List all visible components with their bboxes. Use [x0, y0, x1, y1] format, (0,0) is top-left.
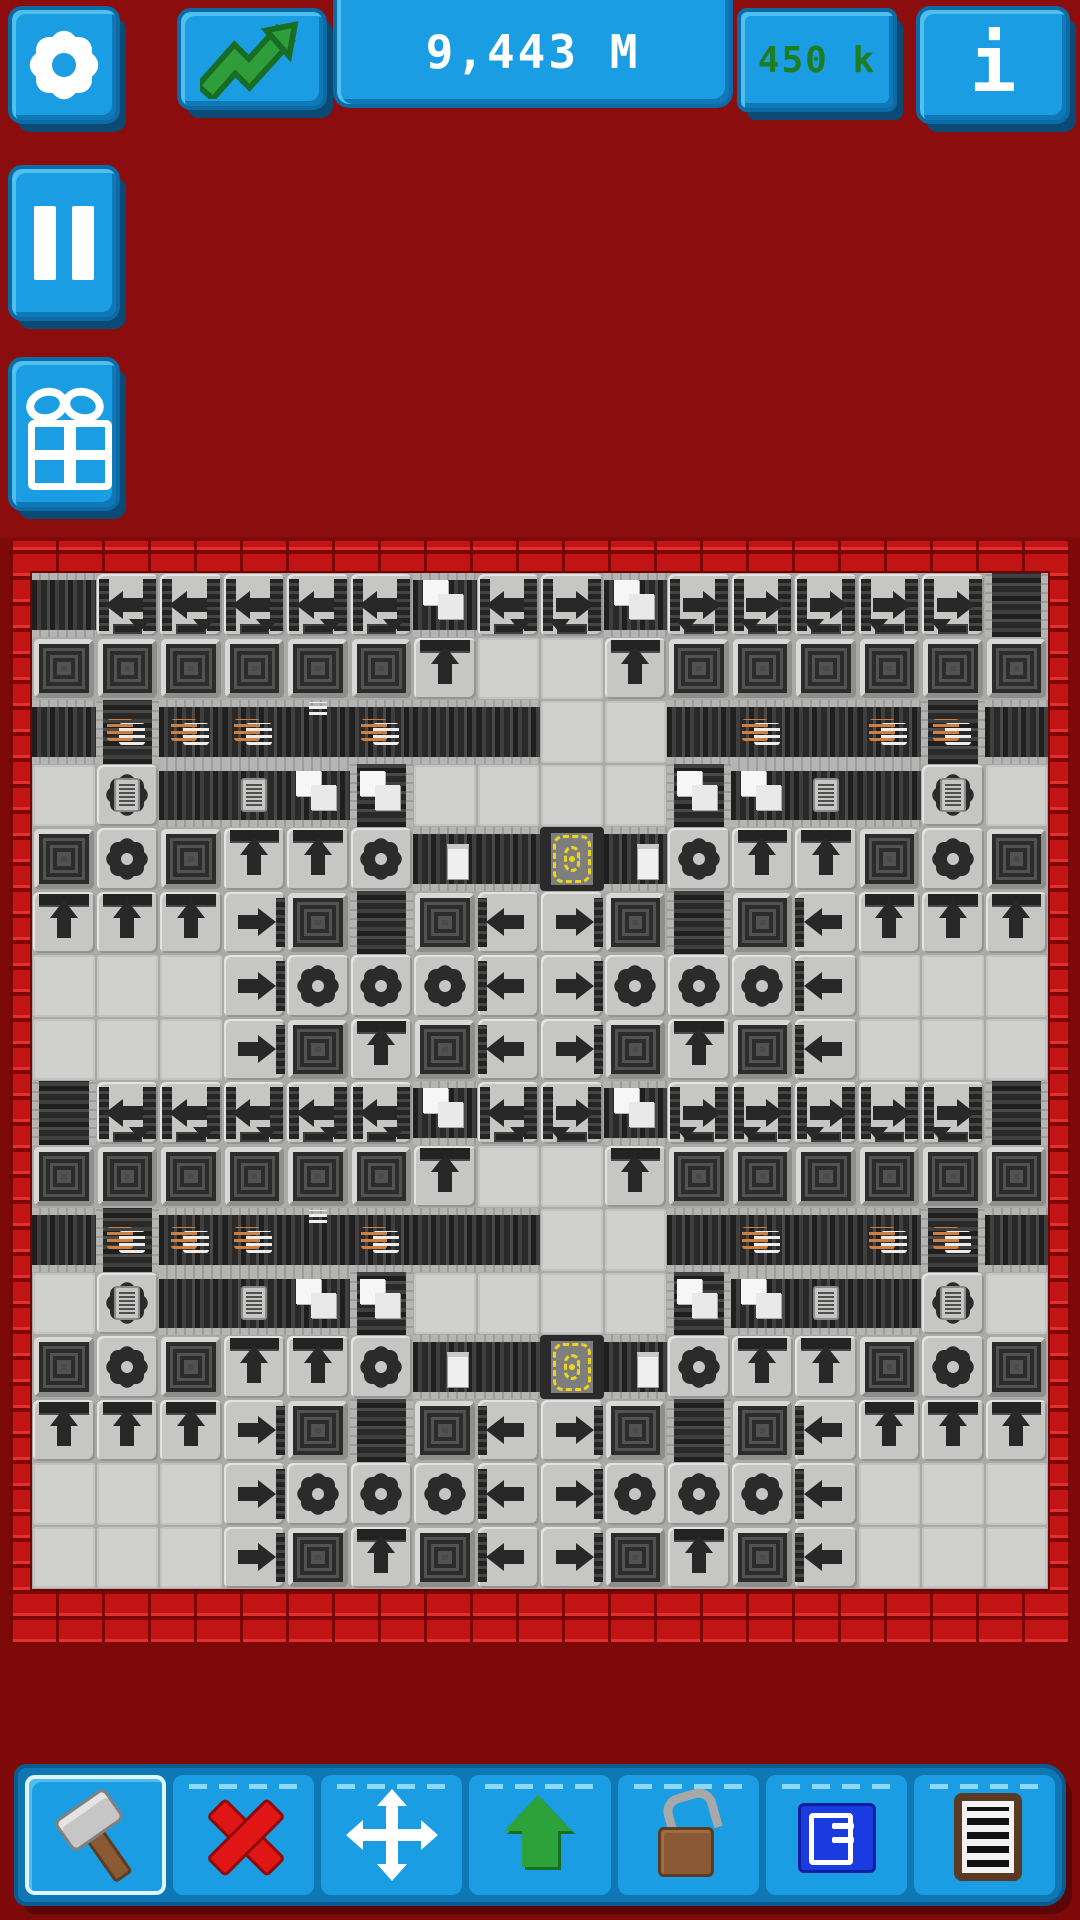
- turn-left-tile[interactable]: [286, 1081, 350, 1145]
- crafter-tile[interactable]: [604, 954, 668, 1018]
- floor-tile[interactable]: [858, 1462, 922, 1526]
- roller-up-tile[interactable]: [604, 637, 668, 701]
- floor-tile[interactable]: [477, 637, 541, 701]
- container-tile[interactable]: [159, 1335, 223, 1399]
- down-hook-icon: [256, 619, 278, 632]
- down-hook-icon: [193, 1127, 215, 1140]
- conveyor-h-tile[interactable]: [223, 1272, 287, 1336]
- container-tile[interactable]: [286, 1399, 350, 1463]
- wire-coil-icon: [107, 719, 147, 745]
- container-tile[interactable]: [604, 1018, 668, 1082]
- crafter-tile[interactable]: [667, 1335, 731, 1399]
- right-arrow-icon: [232, 907, 276, 937]
- roller-up-tile[interactable]: [921, 1399, 985, 1463]
- container-tile[interactable]: [731, 637, 795, 701]
- gear-icon: [110, 842, 144, 876]
- turn-right-tile[interactable]: [921, 1081, 985, 1145]
- floor-tile[interactable]: [921, 1526, 985, 1590]
- container-tile[interactable]: [604, 1399, 668, 1463]
- crafter-tile[interactable]: [96, 827, 160, 891]
- left-arrow-icon: [486, 1542, 530, 1572]
- crafter-tile[interactable]: [286, 954, 350, 1018]
- turn-right-tile[interactable]: [731, 1081, 795, 1145]
- container-tile[interactable]: [731, 1145, 795, 1209]
- crafter-tile[interactable]: [96, 764, 160, 828]
- floor-tile[interactable]: [32, 1526, 96, 1590]
- roller-left-tile[interactable]: [477, 1526, 541, 1590]
- crafter-tile[interactable]: [413, 954, 477, 1018]
- up-arrow-icon: [430, 1154, 460, 1198]
- floor-tile[interactable]: [985, 954, 1049, 1018]
- conveyor-h-tile[interactable]: [858, 1208, 922, 1272]
- turn-left-tile[interactable]: [159, 573, 223, 637]
- up-arrow-icon: [684, 1535, 714, 1579]
- floor-tile[interactable]: [32, 1018, 96, 1082]
- turn-right-tile[interactable]: [794, 1081, 858, 1145]
- floor-tile[interactable]: [604, 1272, 668, 1336]
- turn-right-tile[interactable]: [667, 1081, 731, 1145]
- papers-icon: [360, 771, 408, 819]
- delete-button[interactable]: [173, 1775, 314, 1895]
- roller-up-tile[interactable]: [96, 891, 160, 955]
- turn-left-tile[interactable]: [159, 1081, 223, 1145]
- floor-tile[interactable]: [159, 1462, 223, 1526]
- container-tile[interactable]: [985, 637, 1049, 701]
- crafter-tile[interactable]: [96, 1335, 160, 1399]
- crafter-tile[interactable]: [350, 827, 414, 891]
- container-tile[interactable]: [858, 1145, 922, 1209]
- container-tile[interactable]: [96, 637, 160, 701]
- container-tile[interactable]: [413, 1399, 477, 1463]
- floor-tile[interactable]: [858, 1018, 922, 1082]
- container-tile[interactable]: [413, 1018, 477, 1082]
- container-tile[interactable]: [286, 1526, 350, 1590]
- left-arrow-icon: [296, 1098, 340, 1128]
- container-tile[interactable]: [159, 1145, 223, 1209]
- floor-tile[interactable]: [159, 1018, 223, 1082]
- conveyor-h-tile[interactable]: [604, 1335, 668, 1399]
- conveyor-h-tile[interactable]: [667, 700, 731, 764]
- container-tile[interactable]: [794, 1145, 858, 1209]
- container-tile[interactable]: [32, 827, 96, 891]
- crafter-tile[interactable]: [921, 1335, 985, 1399]
- conveyor-v-tile[interactable]: [667, 764, 731, 828]
- container-tile[interactable]: [858, 1335, 922, 1399]
- orders-button[interactable]: [914, 1775, 1055, 1895]
- conveyor-h-tile[interactable]: [223, 764, 287, 828]
- roller-up-tile[interactable]: [667, 1526, 731, 1590]
- floor-tile[interactable]: [159, 954, 223, 1018]
- roller-right-tile[interactable]: [540, 954, 604, 1018]
- turn-left-tile[interactable]: [223, 573, 287, 637]
- floor-tile[interactable]: [858, 954, 922, 1018]
- floor-tile[interactable]: [921, 1462, 985, 1526]
- roller-left-tile[interactable]: [794, 891, 858, 955]
- roller-up-tile[interactable]: [985, 891, 1049, 955]
- roller-right-tile[interactable]: [223, 891, 287, 955]
- roller-left-tile[interactable]: [794, 954, 858, 1018]
- crafter-tile[interactable]: [286, 1462, 350, 1526]
- crafter-tile[interactable]: [667, 1462, 731, 1526]
- turn-right-tile[interactable]: [794, 573, 858, 637]
- container-tile[interactable]: [32, 637, 96, 701]
- conveyor-v-tile[interactable]: [667, 891, 731, 955]
- floor-tile[interactable]: [985, 1272, 1049, 1336]
- conveyor-h-tile[interactable]: [350, 1208, 414, 1272]
- turn-right-tile[interactable]: [858, 573, 922, 637]
- floor-tile[interactable]: [540, 700, 604, 764]
- floor-tile[interactable]: [413, 764, 477, 828]
- container-tile[interactable]: [985, 827, 1049, 891]
- floor-tile[interactable]: [858, 1526, 922, 1590]
- roller-right-tile[interactable]: [540, 891, 604, 955]
- roller-up-tile[interactable]: [32, 891, 96, 955]
- turn-left-tile[interactable]: [350, 573, 414, 637]
- conveyor-h-tile[interactable]: [858, 764, 922, 828]
- wire-icon: [309, 702, 327, 715]
- roller-left-tile[interactable]: [794, 1462, 858, 1526]
- floor-tile[interactable]: [540, 637, 604, 701]
- roller-right-tile[interactable]: [540, 1462, 604, 1526]
- roller-up-tile[interactable]: [858, 1399, 922, 1463]
- container-tile[interactable]: [667, 637, 731, 701]
- roller-up-tile[interactable]: [96, 1399, 160, 1463]
- roller-up-tile[interactable]: [858, 891, 922, 955]
- upgrade-button[interactable]: [469, 1775, 610, 1895]
- container-tile[interactable]: [286, 1145, 350, 1209]
- conveyor-h-tile[interactable]: [159, 1208, 223, 1272]
- floor-tile[interactable]: [604, 1208, 668, 1272]
- conveyor-h-tile[interactable]: [286, 1208, 350, 1272]
- left-arrow-icon: [486, 1098, 530, 1128]
- conveyor-h-tile[interactable]: [32, 700, 96, 764]
- container-tile[interactable]: [159, 827, 223, 891]
- conveyor-h-tile[interactable]: [731, 700, 795, 764]
- roller-left-tile[interactable]: [477, 954, 541, 1018]
- roller-up-tile[interactable]: [159, 1399, 223, 1463]
- conveyor-h-tile[interactable]: [413, 573, 477, 637]
- down-hook-icon: [510, 1127, 532, 1140]
- conveyor-v-tile[interactable]: [921, 700, 985, 764]
- down-hook-icon: [548, 1127, 570, 1140]
- conveyor-h-tile[interactable]: [794, 764, 858, 828]
- gift-button[interactable]: [8, 357, 120, 511]
- roller-right-tile[interactable]: [223, 1399, 287, 1463]
- crafter-tile[interactable]: [667, 827, 731, 891]
- stats-button[interactable]: [177, 8, 327, 110]
- gear-icon: [364, 1477, 398, 1511]
- conveyor-h-tile[interactable]: [223, 1208, 287, 1272]
- conveyor-h-tile[interactable]: [413, 700, 477, 764]
- roller-up-tile[interactable]: [731, 1335, 795, 1399]
- conveyor-v-tile[interactable]: [985, 1081, 1049, 1145]
- floor-tile[interactable]: [985, 1526, 1049, 1590]
- conveyor-h-tile[interactable]: [477, 700, 541, 764]
- crafter-tile[interactable]: [921, 827, 985, 891]
- crafter-tile[interactable]: [413, 1462, 477, 1526]
- up-arrow-icon: [366, 1535, 396, 1579]
- roller-right-tile[interactable]: [223, 1526, 287, 1590]
- container-tile[interactable]: [667, 1145, 731, 1209]
- conveyor-h-tile[interactable]: [223, 700, 287, 764]
- conveyor-h-tile[interactable]: [794, 1272, 858, 1336]
- conveyor-v-tile[interactable]: [350, 1399, 414, 1463]
- roller-up-tile[interactable]: [32, 1399, 96, 1463]
- floor-tile[interactable]: [96, 1526, 160, 1590]
- container-tile[interactable]: [223, 1145, 287, 1209]
- turn-left-tile[interactable]: [477, 1081, 541, 1145]
- roller-up-tile[interactable]: [985, 1399, 1049, 1463]
- turn-right-tile[interactable]: [540, 573, 604, 637]
- container-tile[interactable]: [794, 637, 858, 701]
- conveyor-v-tile[interactable]: [32, 1081, 96, 1145]
- container-tile[interactable]: [985, 1145, 1049, 1209]
- container-tile[interactable]: [604, 1526, 668, 1590]
- container-tile[interactable]: [858, 827, 922, 891]
- roller-up-tile[interactable]: [413, 637, 477, 701]
- left-arrow-icon: [804, 1034, 848, 1064]
- floor-tile[interactable]: [96, 954, 160, 1018]
- conveyor-h-tile[interactable]: [731, 764, 795, 828]
- crafter-tile[interactable]: [350, 1335, 414, 1399]
- conveyor-h-tile[interactable]: [794, 700, 858, 764]
- roller-up-tile[interactable]: [223, 1335, 287, 1399]
- settings-button[interactable]: [8, 6, 120, 124]
- starter-tile[interactable]: [540, 1335, 604, 1399]
- roller-up-tile[interactable]: [286, 1335, 350, 1399]
- floor-tile[interactable]: [32, 1272, 96, 1336]
- conveyor-h-tile[interactable]: [858, 1272, 922, 1336]
- wire-icon: [309, 1210, 327, 1223]
- roller-right-tile[interactable]: [223, 954, 287, 1018]
- item-icon: [447, 1352, 469, 1388]
- roller-right-tile[interactable]: [540, 1018, 604, 1082]
- up-arrow-icon: [366, 1027, 396, 1071]
- floor-tile[interactable]: [540, 1272, 604, 1336]
- turn-right-tile[interactable]: [667, 573, 731, 637]
- container-tile[interactable]: [921, 1145, 985, 1209]
- conveyor-v-tile[interactable]: [96, 700, 160, 764]
- conveyor-h-tile[interactable]: [159, 1272, 223, 1336]
- roller-up-tile[interactable]: [413, 1145, 477, 1209]
- floor-tile[interactable]: [985, 764, 1049, 828]
- roller-up-tile[interactable]: [921, 891, 985, 955]
- container-tile[interactable]: [731, 1526, 795, 1590]
- floor-tile[interactable]: [604, 700, 668, 764]
- roller-up-tile[interactable]: [794, 827, 858, 891]
- floor-tile[interactable]: [413, 1272, 477, 1336]
- conveyor-h-tile[interactable]: [477, 1208, 541, 1272]
- roller-up-tile[interactable]: [731, 827, 795, 891]
- floor-tile[interactable]: [32, 1462, 96, 1526]
- roller-up-tile[interactable]: [159, 891, 223, 955]
- container-tile[interactable]: [223, 637, 287, 701]
- floor-tile[interactable]: [985, 1018, 1049, 1082]
- conveyor-h-tile[interactable]: [477, 1335, 541, 1399]
- down-hook-icon: [802, 619, 824, 632]
- roller-left-tile[interactable]: [477, 1399, 541, 1463]
- turn-right-tile[interactable]: [731, 573, 795, 637]
- conveyor-h-tile[interactable]: [350, 700, 414, 764]
- crafter-tile[interactable]: [667, 954, 731, 1018]
- container-tile[interactable]: [858, 637, 922, 701]
- crafter-tile[interactable]: [604, 1462, 668, 1526]
- conveyor-h-tile[interactable]: [159, 700, 223, 764]
- conveyor-h-tile[interactable]: [731, 1272, 795, 1336]
- conveyor-v-tile[interactable]: [985, 573, 1049, 637]
- roller-up-tile[interactable]: [223, 827, 287, 891]
- conveyor-h-tile[interactable]: [731, 1208, 795, 1272]
- unlock-button[interactable]: [618, 1775, 759, 1895]
- conveyor-h-tile[interactable]: [286, 1272, 350, 1336]
- conveyor-h-tile[interactable]: [858, 700, 922, 764]
- papers-icon: [614, 1088, 662, 1136]
- container-tile[interactable]: [413, 891, 477, 955]
- conveyor-h-tile[interactable]: [32, 1208, 96, 1272]
- conveyor-h-tile[interactable]: [985, 1208, 1049, 1272]
- container-tile[interactable]: [159, 637, 223, 701]
- floor-tile[interactable]: [477, 1145, 541, 1209]
- container-tile[interactable]: [350, 637, 414, 701]
- conveyor-v-tile[interactable]: [350, 1272, 414, 1336]
- left-arrow-icon: [804, 907, 848, 937]
- roller-up-tile[interactable]: [350, 1526, 414, 1590]
- conveyor-h-tile[interactable]: [604, 1081, 668, 1145]
- conveyor-v-tile[interactable]: [667, 1272, 731, 1336]
- turn-left-tile[interactable]: [223, 1081, 287, 1145]
- container-tile[interactable]: [286, 637, 350, 701]
- move-button[interactable]: [321, 1775, 462, 1895]
- conveyor-h-tile[interactable]: [604, 827, 668, 891]
- floor-tile[interactable]: [921, 1018, 985, 1082]
- roller-up-tile[interactable]: [667, 1018, 731, 1082]
- conveyor-v-tile[interactable]: [921, 1208, 985, 1272]
- conveyor-h-tile[interactable]: [667, 1208, 731, 1272]
- container-tile[interactable]: [286, 891, 350, 955]
- right-arrow-icon: [740, 590, 784, 620]
- floor-tile[interactable]: [96, 1462, 160, 1526]
- crafter-tile[interactable]: [350, 1462, 414, 1526]
- conveyor-h-tile[interactable]: [413, 827, 477, 891]
- starter-tile[interactable]: [540, 827, 604, 891]
- turn-left-tile[interactable]: [350, 1081, 414, 1145]
- container-tile[interactable]: [32, 1335, 96, 1399]
- left-arrow-icon: [486, 971, 530, 1001]
- conveyor-h-tile[interactable]: [413, 1081, 477, 1145]
- conveyor-h-tile[interactable]: [794, 1208, 858, 1272]
- conveyor-h-tile[interactable]: [413, 1335, 477, 1399]
- floor-tile[interactable]: [32, 954, 96, 1018]
- container-tile[interactable]: [731, 1399, 795, 1463]
- roller-right-tile[interactable]: [540, 1526, 604, 1590]
- blueprint-button[interactable]: [766, 1775, 907, 1895]
- roller-up-tile[interactable]: [350, 1018, 414, 1082]
- turn-right-tile[interactable]: [858, 1081, 922, 1145]
- floor-tile[interactable]: [477, 1272, 541, 1336]
- turn-right-tile[interactable]: [540, 1081, 604, 1145]
- conveyor-h-tile[interactable]: [286, 700, 350, 764]
- crafter-tile[interactable]: [350, 954, 414, 1018]
- right-arrow-icon: [232, 1415, 276, 1445]
- roller-up-tile[interactable]: [286, 827, 350, 891]
- floor-tile[interactable]: [32, 764, 96, 828]
- roller-left-tile[interactable]: [477, 891, 541, 955]
- container-tile[interactable]: [32, 1145, 96, 1209]
- roller-left-tile[interactable]: [477, 1462, 541, 1526]
- turn-left-tile[interactable]: [96, 1081, 160, 1145]
- wire-coil-icon: [234, 1227, 274, 1253]
- turn-left-tile[interactable]: [477, 573, 541, 637]
- info-button[interactable]: i: [916, 6, 1070, 124]
- crafter-tile[interactable]: [921, 1272, 985, 1336]
- conveyor-h-tile[interactable]: [286, 764, 350, 828]
- conveyor-h-tile[interactable]: [985, 700, 1049, 764]
- conveyor-v-tile[interactable]: [96, 1208, 160, 1272]
- conveyor-h-tile[interactable]: [159, 764, 223, 828]
- pause-button[interactable]: [8, 165, 120, 321]
- floor-tile[interactable]: [985, 1462, 1049, 1526]
- roller-up-tile[interactable]: [794, 1335, 858, 1399]
- roller-left-tile[interactable]: [794, 1018, 858, 1082]
- roller-left-tile[interactable]: [794, 1526, 858, 1590]
- conveyor-h-tile[interactable]: [477, 827, 541, 891]
- turn-right-tile[interactable]: [921, 573, 985, 637]
- crafter-tile[interactable]: [921, 764, 985, 828]
- up-arrow-icon: [747, 1345, 777, 1389]
- conveyor-v-tile[interactable]: [667, 1399, 731, 1463]
- floor-tile[interactable]: [604, 764, 668, 828]
- floor-tile[interactable]: [540, 764, 604, 828]
- conveyor-h-tile[interactable]: [604, 573, 668, 637]
- crafter-tile[interactable]: [96, 1272, 160, 1336]
- floor-tile[interactable]: [921, 954, 985, 1018]
- container-tile[interactable]: [350, 1145, 414, 1209]
- container-tile[interactable]: [921, 637, 985, 701]
- roller-up-tile[interactable]: [604, 1145, 668, 1209]
- conveyor-h-tile[interactable]: [32, 573, 96, 637]
- money-panel[interactable]: 9,443 M: [333, 0, 733, 108]
- container-tile[interactable]: [985, 1335, 1049, 1399]
- container-tile[interactable]: [96, 1145, 160, 1209]
- conveyor-v-tile[interactable]: [350, 891, 414, 955]
- papers-icon: [296, 1279, 344, 1327]
- roller-right-tile[interactable]: [223, 1462, 287, 1526]
- crafter-tile[interactable]: [731, 1462, 795, 1526]
- conveyor-v-tile[interactable]: [350, 764, 414, 828]
- build-button[interactable]: [25, 1775, 166, 1895]
- floor-tile[interactable]: [540, 1145, 604, 1209]
- floor-tile[interactable]: [477, 764, 541, 828]
- roller-left-tile[interactable]: [477, 1018, 541, 1082]
- floor-tile[interactable]: [159, 1526, 223, 1590]
- container-tile[interactable]: [604, 891, 668, 955]
- papers-icon: [677, 1279, 725, 1327]
- roller-left-tile[interactable]: [794, 1399, 858, 1463]
- container-tile[interactable]: [731, 1018, 795, 1082]
- roller-right-tile[interactable]: [223, 1018, 287, 1082]
- floor-tile[interactable]: [96, 1018, 160, 1082]
- up-arrow-icon: [176, 1408, 206, 1452]
- roller-right-tile[interactable]: [540, 1399, 604, 1463]
- container-tile[interactable]: [731, 891, 795, 955]
- turn-left-tile[interactable]: [286, 573, 350, 637]
- container-tile[interactable]: [286, 1018, 350, 1082]
- container-tile[interactable]: [413, 1526, 477, 1590]
- crafter-tile[interactable]: [731, 954, 795, 1018]
- conveyor-h-tile[interactable]: [413, 1208, 477, 1272]
- turn-left-tile[interactable]: [96, 573, 160, 637]
- floor-tile[interactable]: [540, 1208, 604, 1272]
